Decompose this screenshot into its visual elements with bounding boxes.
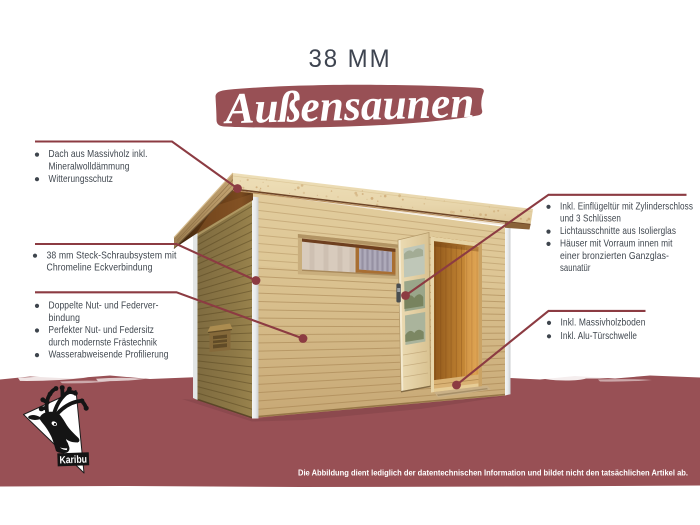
svg-text:Dach aus Massivholz inkl.: Dach aus Massivholz inkl. <box>49 149 148 160</box>
svg-text:Doppelte Nut- und Federver-: Doppelte Nut- und Federver- <box>49 301 159 312</box>
svg-text:Perfekter Nut- und Federsitz: Perfekter Nut- und Federsitz <box>49 325 155 336</box>
svg-text:38 mm Steck-Schraubsystem mit: 38 mm Steck-Schraubsystem mit <box>47 250 177 261</box>
svg-text:Häuser mit Vorraum innen mit: Häuser mit Vorraum innen mit <box>560 239 673 250</box>
svg-text:Außensaunen: Außensaunen <box>222 78 475 134</box>
svg-text:Mineralwolldämmung: Mineralwolldämmung <box>49 162 130 173</box>
svg-text:durch modernste Frästechnik: durch modernste Frästechnik <box>49 337 158 348</box>
svg-text:Witterungsschutz: Witterungsschutz <box>49 174 114 185</box>
svg-text:einer bronzierten Ganzglas-: einer bronzierten Ganzglas- <box>560 251 669 262</box>
svg-text:Inkl. Alu-Türschwelle: Inkl. Alu-Türschwelle <box>561 331 638 342</box>
svg-text:Inkl. Massivholzboden: Inkl. Massivholzboden <box>561 318 646 329</box>
svg-text:Chromeline Eckverbindung: Chromeline Eckverbindung <box>47 263 153 274</box>
svg-text:Wasserabweisende Profilierung: Wasserabweisende Profilierung <box>49 350 169 361</box>
svg-text:Die Abbildung dient lediglich: Die Abbildung dient lediglich der datent… <box>298 469 688 478</box>
svg-text:bindung: bindung <box>49 313 81 324</box>
svg-text:saunatür: saunatür <box>560 263 591 274</box>
svg-text:Inkl. Einflügeltür mit Zylinde: Inkl. Einflügeltür mit Zylinderschloss <box>560 201 693 212</box>
svg-text:und 3 Schlüssen: und 3 Schlüssen <box>560 214 621 225</box>
svg-text:38 MM: 38 MM <box>309 45 392 73</box>
svg-text:Karibu: Karibu <box>59 454 87 467</box>
svg-text:Lichtausschnitte aus Isoliergl: Lichtausschnitte aus Isolierglas <box>560 226 676 237</box>
